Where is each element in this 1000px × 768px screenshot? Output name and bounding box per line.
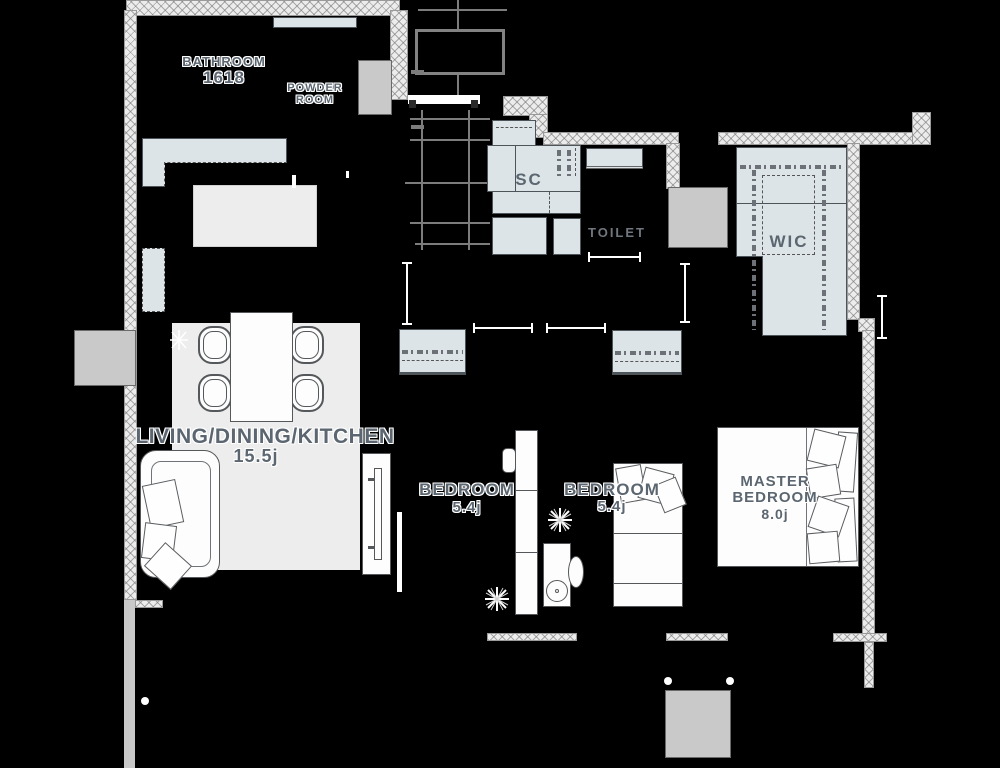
entry-tile-grid: [405, 110, 495, 252]
plant: [168, 328, 190, 352]
opening-tick: [546, 323, 548, 333]
wall-master-right: [862, 330, 875, 636]
tv-foot: [368, 478, 375, 481]
wall-master-bottom-stub: [864, 642, 874, 688]
plant: [483, 585, 511, 613]
opening-tick: [588, 252, 590, 262]
wic-rod: [752, 170, 756, 330]
toilet-shelf: [586, 148, 643, 169]
desk-chair: [502, 448, 516, 473]
tv-foot: [368, 546, 375, 549]
powder-room-label-line1: POWDER: [275, 83, 355, 95]
wall-entry-right-a: [503, 96, 548, 116]
opening-tick: [639, 252, 641, 262]
bedroom2-size: 5.4j: [562, 499, 662, 515]
sc-cabinet-top: [492, 120, 536, 146]
sc-hanger-rod: [567, 150, 571, 177]
wall-toilet-right: [666, 143, 680, 189]
chair-seat: [295, 379, 319, 407]
bedroom1-label: BEDROOM: [417, 481, 517, 499]
shaft-powder-room: [358, 60, 392, 115]
bedroom2-label: BEDROOM: [562, 481, 662, 499]
entrance-door-cap: [471, 100, 478, 108]
window-bedroom2-bottom: [666, 633, 728, 641]
tile-line: [468, 110, 470, 250]
opening-tick: [877, 295, 887, 297]
bathroom-label: BATHROOM: [140, 55, 308, 69]
door-marker: [292, 175, 296, 188]
dining-table: [230, 312, 293, 422]
balcony-wall-stub: [135, 600, 163, 608]
tv: [374, 468, 382, 560]
wall-top-right-notch: [912, 112, 931, 145]
elevator-line: [457, 0, 459, 29]
window-bedroom1-bottom: [487, 633, 577, 641]
desk-shelf-line: [516, 552, 537, 553]
chair-seat: [203, 331, 227, 359]
bed-line: [614, 533, 682, 534]
wic-rod: [822, 170, 826, 330]
powder-room-label-line2: ROOM: [275, 95, 355, 107]
tile-line: [410, 222, 490, 224]
pillar-balcony-bottom: [665, 690, 731, 758]
sc-cabinet-bottom-left: [492, 217, 547, 255]
wall-top-left: [126, 0, 400, 16]
wall-master-bottom: [833, 633, 887, 642]
tile-line: [421, 110, 423, 250]
ldk-label: LIVING/DINING/KITCHEN: [125, 426, 405, 448]
opening-tick: [402, 323, 412, 325]
entrance-door: [408, 95, 480, 104]
bathroom-shelf: [273, 17, 357, 28]
chair-seat: [295, 331, 319, 359]
stool-center: [555, 589, 559, 593]
opening-bedroom2-door: [546, 327, 606, 329]
sc-label: SC: [505, 171, 553, 189]
sc-dashed-line: [496, 127, 532, 128]
closet-rod: [615, 351, 679, 355]
sc-cabinet-mid: [492, 191, 581, 214]
balcony-divider-left: [124, 600, 135, 768]
closet-rod: [402, 350, 463, 354]
chair-back: [568, 556, 584, 588]
wall-top-right: [718, 132, 914, 145]
desk-shelf-line: [516, 490, 537, 491]
opening-hall-left: [406, 262, 408, 325]
opening-tick: [402, 262, 412, 264]
opening-tick: [877, 337, 887, 339]
dining-chair: [198, 326, 232, 364]
soundbar: [397, 512, 402, 592]
handrail-dot: [141, 697, 149, 705]
opening-bedroom1-door: [473, 327, 533, 329]
dining-chair: [290, 326, 324, 364]
toilet-label: TOILET: [575, 226, 659, 240]
opening-right-window: [881, 295, 883, 339]
elevator-line: [457, 75, 459, 97]
dining-chair: [290, 374, 324, 412]
opening-tick: [680, 263, 690, 265]
elevator-rail: [411, 70, 424, 74]
dining-chair: [198, 374, 232, 412]
closet-dash: [402, 360, 463, 361]
pillar-left: [74, 330, 136, 386]
wall-entry-left: [390, 10, 408, 100]
handrail-dot: [664, 677, 672, 685]
ldk-size: 15.5j: [125, 447, 387, 466]
kitchen-island: [193, 185, 317, 247]
tile-line: [415, 243, 490, 245]
master-bedroom-label-line2: BEDROOM: [720, 490, 830, 506]
sc-hanger-rod: [557, 150, 561, 177]
wic-cabinet-lower: [762, 256, 847, 336]
door-marker: [346, 171, 349, 178]
bed-line: [614, 583, 682, 584]
stool: [546, 580, 568, 602]
sc-dashed-line: [575, 148, 576, 176]
closet-dash: [615, 361, 679, 362]
wall-hall-top: [543, 132, 679, 145]
wic-label: WIC: [757, 233, 821, 251]
opening-tick: [531, 323, 533, 333]
opening-tick: [604, 323, 606, 333]
kitchen-counter-leg: [142, 162, 165, 187]
master-bedroom-size: 8.0j: [720, 507, 830, 522]
desk-bedroom1: [515, 430, 538, 615]
elevator-shaft: [415, 29, 505, 75]
master-bedroom-label-line1: MASTER: [720, 474, 830, 490]
floor-plan: BATHROOM 1618 POWDER ROOM SC TOILET WIC …: [0, 0, 1000, 768]
kitchen-cabinet-lower: [142, 248, 165, 312]
elevator-line: [418, 9, 507, 11]
opening-tick: [680, 321, 690, 323]
opening-tick: [473, 323, 475, 333]
pillow: [807, 531, 841, 565]
chair-seat: [203, 379, 227, 407]
opening-toilet: [588, 256, 641, 258]
wic-rod: [740, 165, 843, 169]
tile-line: [410, 118, 490, 120]
sc-dashed-line: [549, 192, 550, 213]
kitchen-counter: [142, 138, 287, 163]
tile-line: [405, 182, 490, 184]
wall-wic-right: [847, 143, 860, 320]
shaft-toilet: [668, 187, 728, 248]
bedroom1-size: 5.4j: [417, 500, 517, 516]
opening-hall-right: [684, 263, 686, 323]
wall-left: [124, 10, 137, 600]
tile-line: [410, 139, 490, 141]
handrail-dot: [726, 677, 734, 685]
entrance-door-cap: [409, 100, 416, 108]
